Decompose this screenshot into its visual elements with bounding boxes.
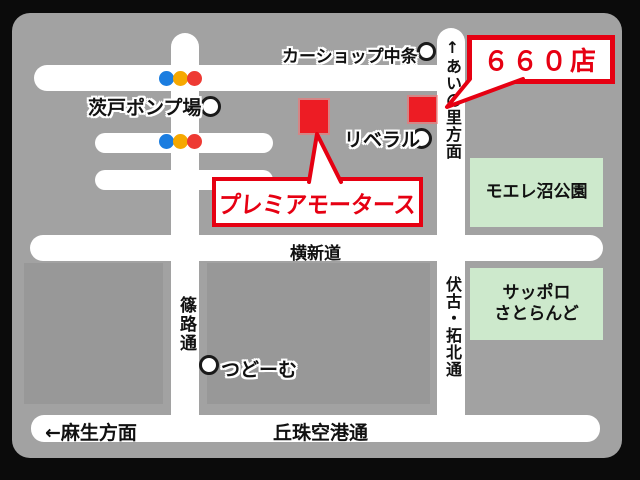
- store-number-callout: ６６０店: [467, 35, 615, 84]
- moere-numa-park-label: モエレ沼公園: [486, 182, 588, 203]
- poi-circle-tsudome: [199, 355, 219, 375]
- ainosato-direction-label: ↑あいの里方面: [440, 38, 464, 160]
- city-block: [24, 263, 163, 404]
- sapporo-satoland-label-line1: サッポロ: [503, 283, 571, 304]
- barato-pump-label: 茨戸ポンプ場: [88, 93, 201, 120]
- store-location-marker: [300, 100, 328, 133]
- traffic-signal-icon: [159, 134, 201, 149]
- signal-yellow-dot: [173, 134, 188, 149]
- access-map: モエレ沼公園 サッポロ さとらんど カーショップ中条 茨戸ポンプ場 リベラル つ…: [0, 0, 640, 480]
- signal-red-dot: [187, 134, 202, 149]
- signal-blue-dot: [159, 134, 174, 149]
- area-moere-numa-park: モエレ沼公園: [470, 158, 603, 227]
- signal-yellow-dot: [173, 71, 188, 86]
- road-top-horizontal: [34, 65, 462, 91]
- okadama-airport-label: 丘珠空港通: [273, 418, 368, 445]
- yoko-shindo-label: 横新道: [290, 239, 341, 264]
- shinoro-dori-label: 篠路通: [174, 296, 199, 353]
- asabu-direction-label: ←麻生方面: [45, 418, 137, 445]
- sapporo-satoland-label-line2: さとらんど: [494, 304, 579, 325]
- car-shop-nakajo-label: カーショップ中条: [282, 42, 418, 67]
- area-sapporo-satoland: サッポロ さとらんど: [470, 268, 603, 340]
- tsudome-label: つどーむ: [221, 355, 297, 382]
- store-number-label: ６６０店: [483, 41, 599, 78]
- signal-blue-dot: [159, 71, 174, 86]
- signal-red-dot: [187, 71, 202, 86]
- store-name-callout: プレミアモータース: [212, 177, 423, 227]
- poi-circle-car-shop-nakajo: [417, 42, 436, 61]
- poi-circle-barato-pump: [200, 96, 221, 117]
- traffic-signal-icon: [159, 71, 201, 86]
- city-block: [207, 263, 430, 404]
- store-name-label: プレミアモータース: [217, 185, 417, 220]
- map-canvas: モエレ沼公園 サッポロ さとらんど カーショップ中条 茨戸ポンプ場 リベラル つ…: [12, 13, 622, 458]
- secondary-location-marker: [409, 97, 436, 122]
- fushiko-takuhoku-label: 伏古・拓北通: [440, 276, 464, 378]
- liberal-label: リベラル: [344, 125, 420, 152]
